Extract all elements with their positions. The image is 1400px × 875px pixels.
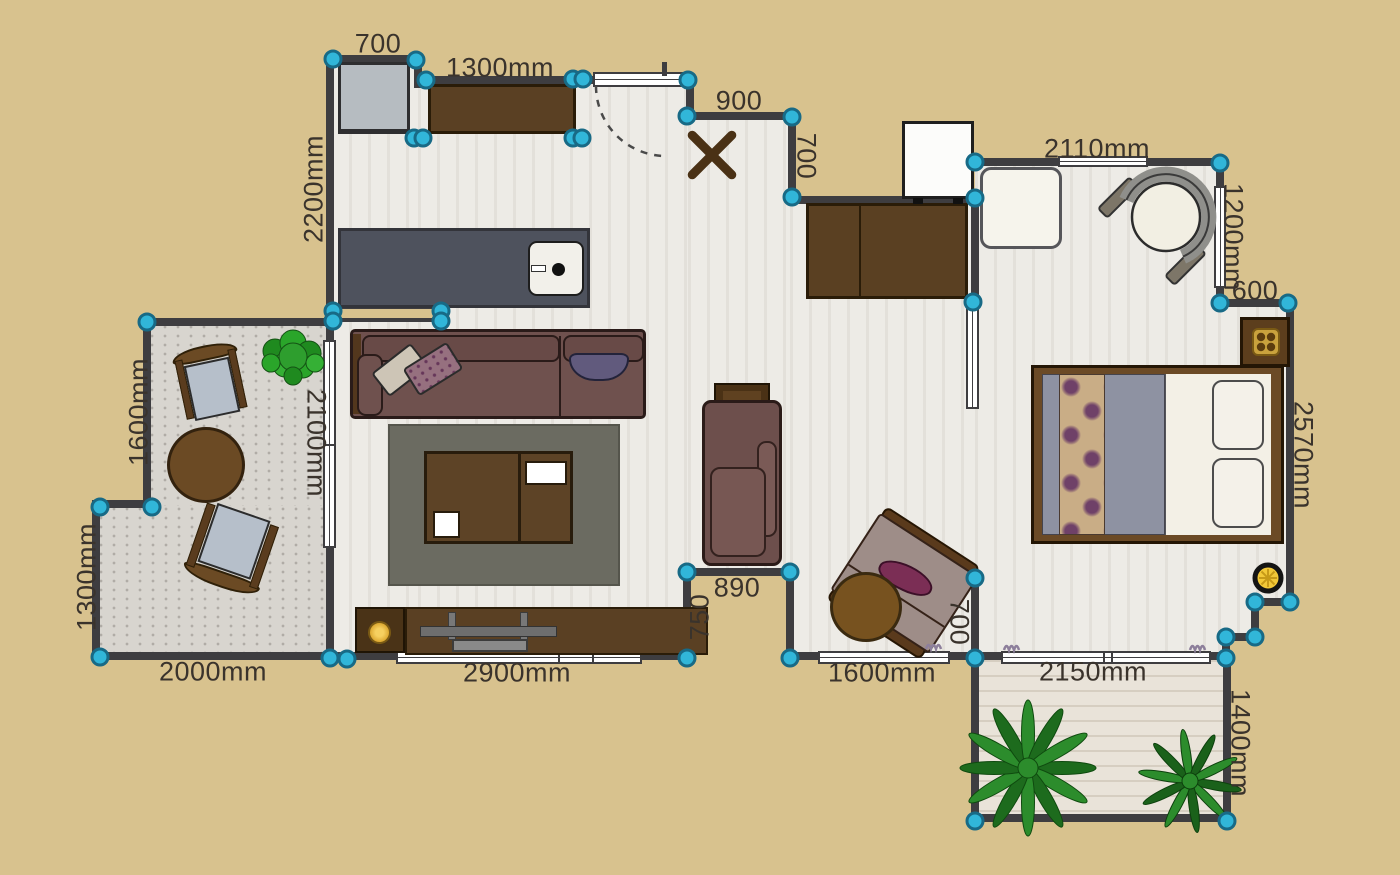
kitchen-counter[interactable] bbox=[338, 228, 590, 308]
dim-notch-890: 890 bbox=[714, 573, 761, 604]
table-lamp bbox=[368, 621, 391, 644]
dim-patio-2000: 2000mm bbox=[159, 657, 267, 688]
wall-handle[interactable] bbox=[964, 293, 983, 312]
dim-window-1600: 1600mm bbox=[828, 658, 936, 689]
wall-handle[interactable] bbox=[1246, 593, 1265, 612]
wall-handle[interactable] bbox=[966, 153, 985, 172]
wall-handle[interactable] bbox=[414, 129, 433, 148]
nightstand[interactable] bbox=[1240, 317, 1290, 367]
sliding-door[interactable] bbox=[966, 303, 979, 409]
dim-window-2900: 2900mm bbox=[463, 658, 571, 689]
machine-foot bbox=[953, 198, 963, 204]
wall-handle[interactable] bbox=[966, 569, 985, 588]
wall-segment[interactable] bbox=[971, 196, 979, 307]
wall-segment[interactable] bbox=[971, 652, 979, 822]
wall-handle[interactable] bbox=[91, 498, 110, 517]
fridge[interactable] bbox=[338, 62, 410, 134]
dim-hall-700: 700 bbox=[791, 133, 822, 180]
dim-window-2150: 2150mm bbox=[1039, 657, 1147, 688]
dim-step-600: 600 bbox=[1232, 276, 1279, 307]
wall-handle[interactable] bbox=[432, 312, 451, 331]
wall-handle[interactable] bbox=[678, 107, 697, 126]
hallway-cabinet[interactable] bbox=[806, 203, 968, 299]
wall-handle[interactable] bbox=[966, 812, 985, 831]
cabinet-seam bbox=[859, 206, 861, 296]
machine-foot bbox=[913, 198, 923, 204]
wall-handle[interactable] bbox=[1211, 154, 1230, 173]
wall-handle[interactable] bbox=[574, 70, 593, 89]
recliner-seat bbox=[710, 467, 766, 557]
dim-window-2100: 2100mm bbox=[301, 389, 332, 497]
sofa-pillow-purple bbox=[569, 353, 629, 381]
dim-patio-1600: 1600mm bbox=[124, 358, 155, 466]
wall-segment[interactable] bbox=[143, 318, 334, 326]
floorplan-canvas: 700 1300mm 2200mm 900 700 2110mm 1200mm … bbox=[0, 0, 1400, 875]
recliner-armchair[interactable] bbox=[702, 400, 782, 566]
bed-pillow bbox=[1212, 380, 1264, 450]
wall-handle[interactable] bbox=[324, 312, 343, 331]
dim-balcony-1400: 1400mm bbox=[1225, 689, 1256, 797]
dim-patio-1300: 1300mm bbox=[72, 523, 103, 631]
wall-handle[interactable] bbox=[678, 563, 697, 582]
wall-handle[interactable] bbox=[1217, 628, 1236, 647]
ottoman[interactable] bbox=[830, 572, 902, 642]
wall-handle[interactable] bbox=[966, 649, 985, 668]
wall-handle[interactable] bbox=[783, 108, 802, 127]
wall-handle[interactable] bbox=[966, 189, 985, 208]
wall-handle[interactable] bbox=[783, 188, 802, 207]
wall-handle[interactable] bbox=[338, 650, 357, 669]
table-tray bbox=[525, 461, 567, 485]
wall-handle[interactable] bbox=[781, 563, 800, 582]
dim-notch-750: 750 bbox=[685, 594, 716, 641]
dim-hall-900: 900 bbox=[716, 86, 763, 117]
wall-handle[interactable] bbox=[407, 51, 426, 70]
wall-handle[interactable] bbox=[1246, 628, 1265, 647]
side-table[interactable] bbox=[980, 167, 1062, 249]
wall-handle[interactable] bbox=[138, 313, 157, 332]
washing-machine[interactable] bbox=[902, 121, 974, 199]
wall-handle[interactable] bbox=[324, 50, 343, 69]
dim-cabinet-1300: 1300mm bbox=[446, 53, 554, 84]
wall-segment[interactable] bbox=[786, 568, 794, 660]
kitchen-cabinet[interactable] bbox=[428, 84, 576, 134]
dim-fridge-700: 700 bbox=[355, 29, 402, 60]
table-book bbox=[433, 511, 460, 538]
double-bed[interactable] bbox=[1031, 365, 1284, 544]
wall-handle[interactable] bbox=[678, 649, 697, 668]
wall-segment[interactable] bbox=[971, 814, 1231, 822]
dim-bedroom-2570: 2570mm bbox=[1288, 401, 1319, 509]
wall-handle[interactable] bbox=[143, 498, 162, 517]
wall-handle[interactable] bbox=[1281, 593, 1300, 612]
void-step-2 bbox=[1228, 639, 1302, 668]
wall-handle[interactable] bbox=[781, 649, 800, 668]
table-seam bbox=[518, 454, 521, 541]
wall-handle[interactable] bbox=[91, 648, 110, 667]
sink-drain bbox=[552, 263, 565, 276]
dim-window-2110: 2110mm bbox=[1044, 134, 1150, 165]
wall-handle[interactable] bbox=[573, 129, 592, 148]
wall-handle[interactable] bbox=[1279, 294, 1298, 313]
coffee-table[interactable] bbox=[424, 451, 573, 544]
dim-wall-700-right: 700 bbox=[944, 599, 975, 646]
bed-pillow bbox=[1212, 458, 1264, 528]
tv-stand[interactable] bbox=[405, 607, 708, 655]
sink-tap bbox=[531, 265, 546, 272]
bed-floral-runner bbox=[1059, 374, 1105, 535]
tv-base bbox=[452, 639, 528, 652]
wall-handle[interactable] bbox=[1218, 812, 1237, 831]
lamp-cabinet[interactable] bbox=[355, 607, 405, 653]
patio-table[interactable] bbox=[167, 427, 245, 503]
entry-door[interactable] bbox=[593, 72, 683, 87]
sofa[interactable] bbox=[350, 329, 646, 419]
wall-handle[interactable] bbox=[417, 71, 436, 90]
sofa-seam bbox=[559, 336, 561, 418]
tv-screen bbox=[420, 626, 557, 637]
wall-handle[interactable] bbox=[679, 71, 698, 90]
door-hinge bbox=[662, 62, 667, 76]
wall-handle[interactable] bbox=[1217, 649, 1236, 668]
dim-wall-2200: 2200mm bbox=[299, 135, 330, 243]
wall-handle[interactable] bbox=[1211, 294, 1230, 313]
